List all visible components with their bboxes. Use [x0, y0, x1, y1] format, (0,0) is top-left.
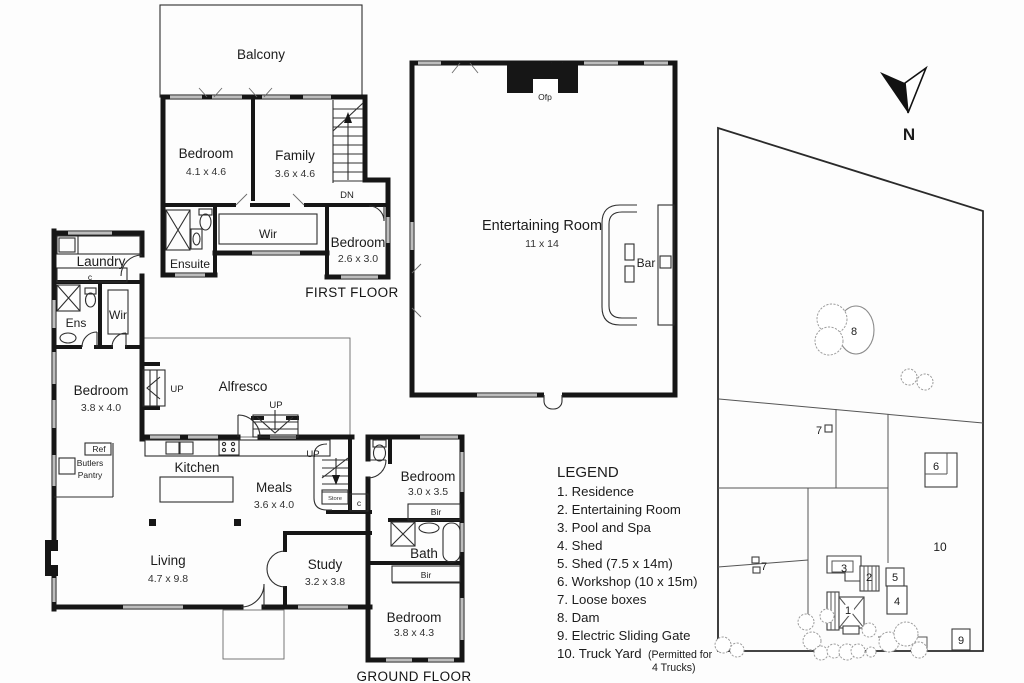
loose-box-left-a	[752, 557, 759, 563]
up-center-label: UP	[269, 400, 282, 411]
living-fireplace-opening	[51, 551, 60, 565]
study-dims: 3.2 x 3.8	[305, 576, 345, 588]
legend-item-10-note2: 4 Trucks)	[652, 662, 696, 674]
tree	[815, 327, 843, 355]
legend-item-10: 10. Truck Yard	[557, 646, 642, 661]
ground-floor-title: GROUND FLOOR	[356, 669, 471, 683]
living-label: Living	[150, 553, 185, 568]
site-marker-6: 6	[933, 461, 939, 473]
legend-item-8: 8. Dam	[557, 610, 600, 625]
up-left-label: UP	[170, 384, 183, 395]
bir2-label: Bir	[421, 570, 432, 580]
site-plan: 1 2 3 4 5 6 7 7 8 9 10 N	[715, 68, 983, 660]
porch-outline	[223, 610, 284, 659]
workshop-6	[925, 453, 957, 487]
fireplace-opening	[533, 79, 558, 93]
bir1-label: Bir	[431, 507, 442, 517]
site-marker-8: 8	[851, 326, 857, 338]
north-label: N	[903, 125, 915, 144]
ff-bedroom2-dims: 2.6 x 3.0	[338, 253, 378, 265]
site-trees	[715, 609, 927, 660]
door-gap	[544, 390, 562, 399]
ens-label: Ens	[66, 316, 87, 330]
kitchen-fixtures	[145, 440, 330, 502]
site-marker-3: 3	[841, 563, 847, 575]
tree	[901, 369, 917, 385]
study-label: Study	[308, 557, 343, 572]
north-arrow-icon	[880, 68, 926, 113]
entertaining-room-plan: Ofp Entertaining Room 11 x 14 Bar	[412, 63, 675, 409]
legend-title: LEGEND	[557, 464, 619, 481]
column	[234, 519, 241, 526]
site-marker-7-top: 7	[816, 425, 822, 437]
site-buildings	[752, 425, 970, 650]
stairs-first-floor	[333, 100, 363, 183]
residence-porch	[843, 626, 859, 634]
ff-bedroom2-label: Bedroom	[331, 235, 386, 250]
legend-item-3: 3. Pool and Spa	[557, 520, 652, 535]
legend-item-7: 7. Loose boxes	[557, 592, 647, 607]
floorplan-drawing: Balcony Bedroom 4.1 x 4.6 Family 3.6 x 4…	[0, 0, 1024, 683]
meals-label: Meals	[256, 480, 292, 495]
living-dims: 4.7 x 9.8	[148, 573, 188, 585]
closet-label: c	[357, 498, 362, 508]
gf-bedroom1-label: Bedroom	[74, 383, 129, 398]
ground-floor-plan: Laundry c Ens Wir Bedroom 3.8 x 4.0 Alfr…	[45, 231, 472, 683]
legend-item-2: 2. Entertaining Room	[557, 502, 681, 517]
gf-bedroom3-dims: 3.8 x 4.3	[394, 627, 434, 639]
site-marker-7-left: 7	[761, 561, 767, 573]
family-label: Family	[275, 148, 315, 163]
bedroom2-door-arc	[369, 206, 384, 221]
entertaining-label: Entertaining Room	[482, 218, 602, 234]
up-arrow-left-icon	[147, 377, 160, 399]
first-floor-walls	[163, 97, 388, 277]
bath-label: Bath	[410, 546, 438, 561]
gf-bedroom3-label: Bedroom	[387, 610, 442, 625]
loose-box-top	[825, 425, 832, 432]
site-marker-5: 5	[892, 572, 898, 584]
ground-floor-walls	[54, 231, 462, 660]
legend-item-1: 1. Residence	[557, 484, 634, 499]
up-stairs-label: UP	[306, 449, 319, 460]
ff-wir-label: Wir	[259, 227, 277, 241]
gf-bedroom1-dims: 3.8 x 4.0	[81, 402, 121, 414]
ff-bedroom1-label: Bedroom	[179, 146, 234, 161]
laundry-label: Laundry	[77, 254, 126, 269]
first-floor-windows	[170, 97, 388, 277]
family-dims: 3.6 x 4.6	[275, 168, 315, 180]
site-marker-4: 4	[894, 596, 900, 608]
ens-fixtures	[57, 285, 96, 343]
legend: LEGEND 1. Residence 2. Entertaining Room…	[557, 464, 713, 674]
store-label: Store	[328, 496, 342, 502]
ff-ensuite-label: Ensuite	[170, 257, 210, 271]
alfresco-label: Alfresco	[219, 379, 268, 394]
floorplan-page: Balcony Bedroom 4.1 x 4.6 Family 3.6 x 4…	[0, 0, 1024, 683]
meals-dims: 3.6 x 4.0	[254, 499, 294, 511]
loose-box-left-b	[753, 567, 760, 573]
gf-wir-label: Wir	[109, 308, 127, 322]
ofp-label: Ofp	[538, 92, 552, 102]
column	[149, 519, 156, 526]
legend-item-9: 9. Electric Sliding Gate	[557, 628, 690, 643]
entertaining-dims: 11 x 14	[525, 238, 559, 250]
butlers-label-2: Pantry	[78, 470, 103, 480]
butlers-label-1: Butlers	[77, 458, 103, 468]
ff-bedroom1-dims: 4.1 x 4.6	[186, 166, 226, 178]
ensuite-fixtures	[166, 209, 212, 250]
dn-label: DN	[340, 190, 354, 201]
gf-bedroom2-dims: 3.0 x 3.5	[408, 486, 448, 498]
site-marker-10: 10	[933, 540, 947, 554]
legend-item-10-note1: (Permitted for	[648, 649, 713, 661]
balcony-label: Balcony	[237, 47, 285, 62]
legend-item-6: 6. Workshop (10 x 15m)	[557, 574, 697, 589]
first-floor-title: FIRST FLOOR	[305, 285, 398, 300]
first-floor-plan: Balcony Bedroom 4.1 x 4.6 Family 3.6 x 4…	[160, 5, 399, 300]
site-marker-9: 9	[958, 635, 964, 647]
site-marker-1: 1	[845, 605, 851, 617]
legend-item-5: 5. Shed (7.5 x 14m)	[557, 556, 673, 571]
site-marker-2: 2	[866, 572, 872, 584]
ref-label: Ref	[92, 444, 106, 454]
ground-floor-windows	[54, 233, 462, 660]
gf-bedroom2-label: Bedroom	[401, 469, 456, 484]
tree	[917, 374, 933, 390]
kitchen-label: Kitchen	[174, 460, 219, 475]
legend-item-4: 4. Shed	[557, 538, 602, 553]
bar-label: Bar	[637, 256, 656, 270]
